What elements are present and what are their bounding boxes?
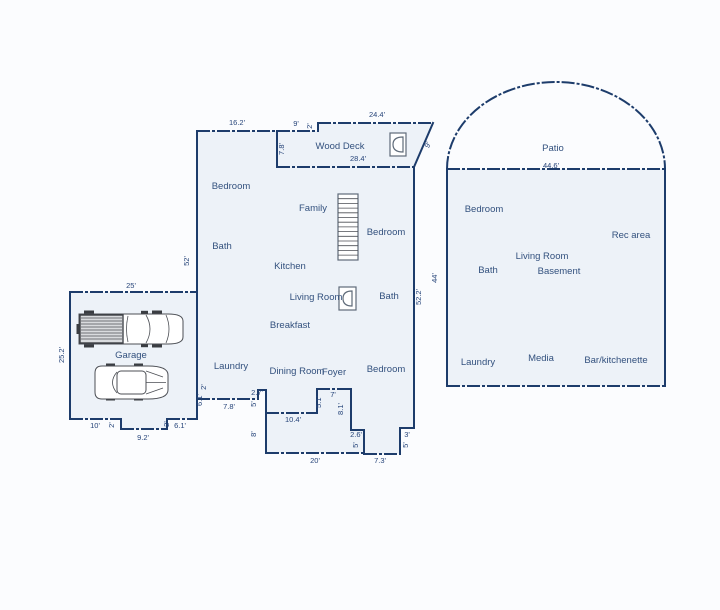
room-label: Rec area xyxy=(612,230,651,241)
dimension-label: 2.6' xyxy=(350,430,362,439)
dimension-label: 5.1' xyxy=(314,396,323,408)
room-label: Bath xyxy=(379,291,399,302)
room-label: Bedroom xyxy=(367,364,406,375)
room-label: Bath xyxy=(212,241,232,252)
room-label: Breakfast xyxy=(270,320,310,331)
dimension-label: 7.3' xyxy=(374,456,386,465)
dimension-label: 7.8' xyxy=(277,143,286,155)
dimension-label: 5' xyxy=(249,401,258,407)
car-icon xyxy=(95,364,168,401)
dimension-label: 7' xyxy=(330,390,336,399)
room-label: Garage xyxy=(115,350,147,361)
room-label: Dining Room xyxy=(270,366,325,377)
dimension-label: 52' xyxy=(182,256,191,266)
room-label: Living Room xyxy=(290,292,343,303)
dimension-label: 44.6' xyxy=(543,161,560,170)
deck-door-icon xyxy=(390,133,406,156)
dimension-label: 9' xyxy=(293,119,299,128)
dimension-label: 24.4' xyxy=(369,110,386,119)
room-label: Foyer xyxy=(322,367,346,378)
basement-building-fill xyxy=(447,169,665,386)
room-label: Family xyxy=(299,203,327,214)
dimension-label: 9.2' xyxy=(137,433,149,442)
room-label: Bath xyxy=(478,265,498,276)
dimension-label: 25' xyxy=(126,281,136,290)
dimension-label: 52.2' xyxy=(414,288,423,305)
patio-arc xyxy=(447,82,665,169)
room-label: Patio xyxy=(542,143,564,154)
dimension-label: 2' xyxy=(305,123,314,129)
room-label: Media xyxy=(528,353,555,364)
dimension-label: 3' xyxy=(404,430,410,439)
dimension-label: 2' xyxy=(199,384,208,390)
room-label: Bedroom xyxy=(212,181,251,192)
dimension-label: 28.4' xyxy=(350,154,367,163)
room-label: Bar/kitchenette xyxy=(584,355,647,366)
dimension-label: 5' xyxy=(351,442,360,448)
dimension-label: 2' xyxy=(162,421,171,427)
dimension-label: 8.1' xyxy=(336,403,345,415)
dimension-label: 25.2' xyxy=(57,346,66,363)
dimension-label: 16.2' xyxy=(229,118,246,127)
room-label: Bedroom xyxy=(465,204,504,215)
room-label: Laundry xyxy=(461,357,496,368)
dimension-label: 44' xyxy=(430,273,439,283)
floor-plan: BedroomFamilyBedroomBathKitchenLiving Ro… xyxy=(0,0,720,610)
floor-plan-svg: BedroomFamilyBedroomBathKitchenLiving Ro… xyxy=(0,0,720,610)
building-fills xyxy=(70,123,665,454)
room-label: Wood Deck xyxy=(316,141,365,152)
dimension-label: 2' xyxy=(107,422,116,428)
room-label: Laundry xyxy=(214,361,249,372)
dimension-label: 8' xyxy=(249,431,258,437)
dimension-label: 5' xyxy=(401,442,410,448)
dimension-label: 10.4' xyxy=(285,415,302,424)
room-label: Kitchen xyxy=(274,261,306,272)
dimension-label: 2.7' xyxy=(251,388,263,397)
room-label: Living Room xyxy=(516,251,569,262)
dimension-label: 7.8' xyxy=(223,402,235,411)
dimension-label: 6.1' xyxy=(195,394,204,406)
staircase-icon xyxy=(338,194,358,260)
room-label: Bedroom xyxy=(367,227,406,238)
dimension-label: 10' xyxy=(90,421,100,430)
dimension-label: 9' xyxy=(423,140,434,150)
dimension-label: 20' xyxy=(310,456,320,465)
room-label: Basement xyxy=(538,266,581,277)
dimension-label: 6.1' xyxy=(174,421,186,430)
truck-icon xyxy=(77,311,184,348)
